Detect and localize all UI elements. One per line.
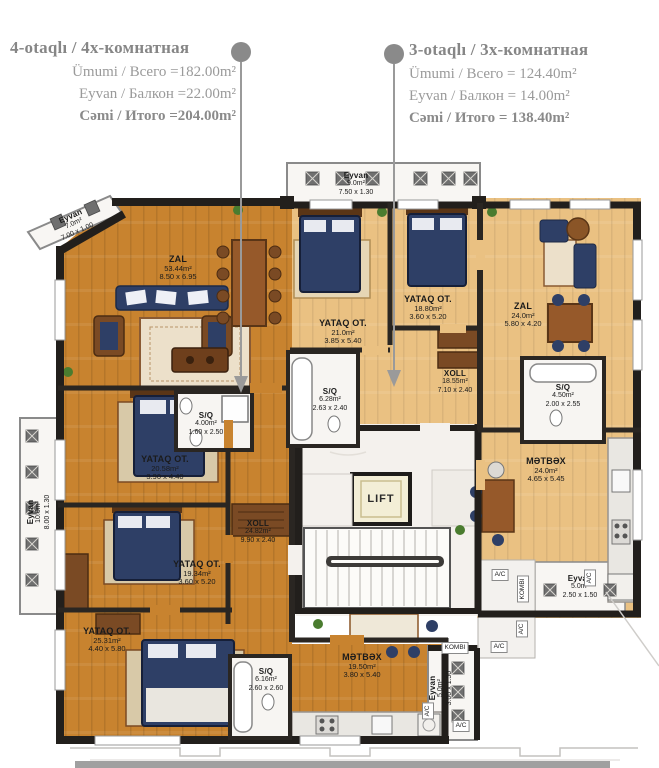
room-label-zal4: ZAL 53.44m² 8.50 x 6.95 (159, 254, 196, 282)
room-label-yataq2-3: YATAQ OT. 18.80m² 3.60 x 5.20 (404, 294, 452, 322)
callout-3otaq (384, 44, 404, 387)
room-label-sq2-4: S/Q 6.16m² 2.60 x 2.60 (249, 667, 284, 693)
apartment4-balcony-area: Eyvan / Балкон =22.00m² (10, 83, 236, 105)
room-label-metbex3: MƏTBƏX 24.0m² 4.65 x 5.45 (526, 456, 566, 484)
apartment3-balcony-area: Eyvan / Балкон = 14.00m² (409, 85, 654, 107)
kombi-tag-1: KOMBI (517, 576, 529, 603)
room-label-metbex4: MƏTBƏX 19.50m² 3.80 x 5.40 (342, 652, 382, 680)
room-label-xoll4: XOLL 24.82m² 9.90 x 2.40 (241, 519, 276, 545)
ac-tag-5: A/C (422, 703, 434, 720)
apartment3-title: 3-otaqlı / 3х-комнатная (409, 40, 654, 60)
apartment4-total-area: Ümumi / Всего =182.00m² (10, 61, 236, 83)
ac-tag-4: A/C (491, 641, 508, 653)
room-label-yataq1-3: YATAQ OT. 21.0m² 3.85 x 5.40 (319, 318, 367, 346)
room-label-xoll3: XOLL 18.55m² 7.10 x 2.40 (438, 369, 473, 395)
kombi-tag-2: KOMBI (442, 642, 469, 654)
ac-tag-3: A/C (516, 621, 528, 638)
stairs (304, 528, 450, 608)
ac-tag-6: A/C (453, 720, 470, 732)
apartment4-title: 4-otaqlı / 4х-комнатная (10, 38, 236, 58)
ac-tag-2: A/C (584, 570, 596, 587)
lift-label: LIFT (367, 493, 394, 505)
apartment4-summary: 4-otaqlı / 4х-комнатная Ümumi / Всего =1… (10, 38, 236, 127)
apartment4-sum-area: Cəmi / Итого =204.00m² (10, 105, 236, 127)
apartment3-total-area: Ümumi / Всего = 124.40m² (409, 63, 654, 85)
floor-plan-page: 4-otaqlı / 4х-комнатная Ümumi / Всего =1… (0, 0, 659, 768)
room-label-eyvan-top3: Eyvan 9.0m² 7.50 x 1.30 (339, 171, 374, 197)
room-label-eyvan-left4: Eyvan 10.0m² 8.00 x 1.30 (26, 495, 52, 530)
room-label-yataq2-4: YATAQ OT. 19.34m² 3.60 x 5.20 (173, 559, 221, 587)
room-label-yataq1-4: YATAQ OT. 20.58m² 3.90 x 4.40 (141, 454, 189, 482)
room-label-sq2-3: S/Q 4.50m² 2.00 x 2.55 (546, 383, 581, 409)
apartment3-sum-area: Cəmi / Итого = 138.40m² (409, 107, 654, 129)
apartment3-summary: 3-otaqlı / 3х-комнатная Ümumi / Всего = … (409, 40, 654, 129)
ac-tag-1: A/C (492, 569, 509, 581)
room-label-sq1-3: S/Q 6.28m² 2.63 x 2.40 (313, 387, 348, 413)
room-label-yataq3-4: YATAQ OT. 25.31m² 4.40 x 5.80 (83, 626, 131, 654)
room-label-zal3: ZAL 24.0m² 5.80 x 4.20 (504, 301, 541, 329)
livingroom3-furniture (540, 218, 596, 352)
room-label-eyvan-bottom4: Eyvan 5.0m² 3.00 x 1.50 (428, 671, 454, 706)
room-label-sq1-4: S/Q 4.00m² 1.60 x 2.50 (189, 411, 224, 437)
